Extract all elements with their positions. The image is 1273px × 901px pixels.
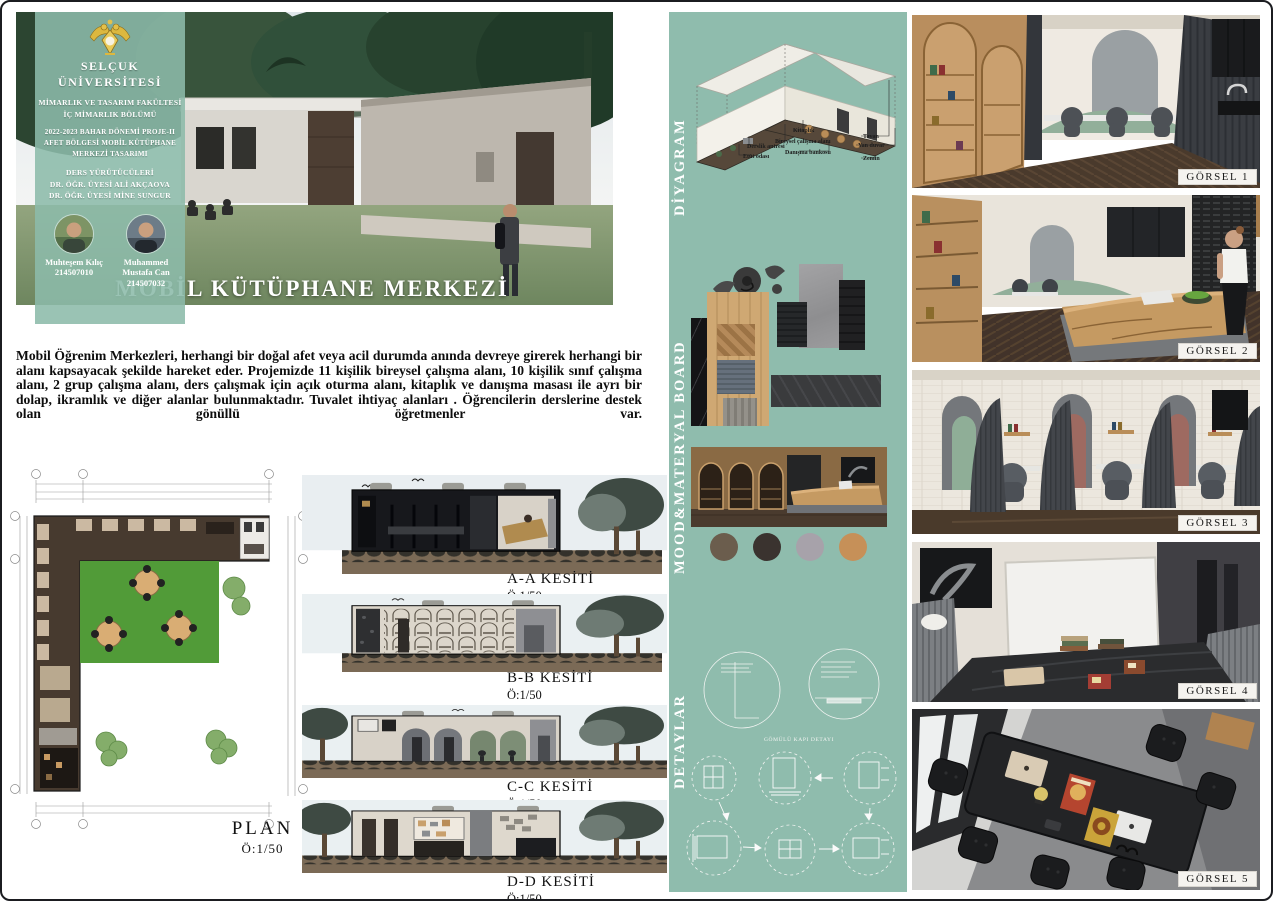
gorsel-2-art: [912, 195, 1260, 362]
group-table-1: [40, 666, 70, 690]
department-name: İÇ MİMARLIK BÖLÜMÜ: [35, 109, 185, 121]
courtyard: [80, 561, 219, 663]
gorsel-1-art: [912, 15, 1260, 188]
gorsel-4-art: [912, 542, 1260, 702]
section-cc-label: C-C KESİTİ: [507, 779, 657, 796]
section-bb-caption: B-B KESİTİ Ö:1/50: [507, 670, 657, 703]
section-bb-scale: Ö:1/50: [507, 688, 657, 703]
wall-art: [841, 457, 875, 483]
student-2-name: Muhammed Mustafa Can: [116, 257, 176, 278]
section-dd-art: [302, 800, 667, 873]
wooden-bookshelf: [912, 15, 1042, 188]
university-logo: [87, 18, 133, 58]
detail-circle-2: [809, 649, 879, 719]
detail-drawings: GÖMÜLÜ KAPI DETAYI: [683, 640, 901, 890]
section-cc-art: [302, 705, 667, 778]
section-bb-label: B-B KESİTİ: [507, 670, 657, 687]
project-name-line1: AFET BÖLGESİ MOBİL KÜTÜPHANE: [35, 138, 185, 149]
student-2-portrait: [127, 215, 165, 253]
color-palette: [669, 533, 907, 561]
laptop: [839, 481, 853, 490]
section-dd-caption: D-D KESİTİ Ö:1/50: [507, 874, 657, 901]
diagram-annotation: Kitaplık: [793, 128, 815, 134]
university-name: SELÇUK ÜNİVERSİTESİ: [35, 59, 185, 90]
section-dd-scale: Ö:1/50: [507, 892, 657, 901]
upper-cabinet: [1212, 19, 1260, 77]
material-sample-ribbed-panel: [717, 360, 755, 394]
section-aa-art: [302, 475, 667, 574]
section-dd-label: D-D KESİTİ: [507, 874, 657, 891]
project-term: 2022-2023 BAHAR DÖNEMİ PROJE-II: [35, 127, 185, 138]
gorsel-5-art: [912, 709, 1260, 890]
student-2-id: 214507032: [116, 278, 176, 289]
gorsel-5-label: GÖRSEL 5: [1178, 871, 1257, 887]
green-strip: DİYAGRAM MOOD&MATERYAL BOARD DETAYLAR: [669, 12, 907, 892]
desk-chairs: [1061, 107, 1173, 137]
diagram-annotation: Danışma bankosu: [785, 150, 832, 156]
section-aa-label: A-A KESİTİ: [507, 571, 657, 588]
diagram-annotation: Zemin: [863, 156, 880, 162]
student-2-photo: [126, 214, 166, 254]
palette-swatch-3: [796, 533, 824, 561]
project-description: Mobil Öğrenim Merkezleri, herhangi bir d…: [16, 349, 642, 422]
diagram-annotation: Yan duvar: [858, 143, 885, 149]
info-sidebar: SELÇUK ÜNİVERSİTESİ MİMARLIK VE TASARIM …: [35, 12, 185, 324]
render-gorsel-5: GÖRSEL 5: [912, 709, 1260, 890]
upper-cabinets: [1107, 207, 1185, 257]
detail-bubbles: [687, 752, 896, 875]
material-sample-chevron-floor: [771, 375, 881, 407]
palette-swatch-1: [710, 533, 738, 561]
material-sample-slate: [777, 302, 807, 347]
tablet: [1003, 667, 1044, 687]
material-sample-weathered-wood: [723, 398, 757, 426]
gorsel-3-art: [912, 370, 1260, 534]
gorsel-4-label: GÖRSEL 4: [1178, 683, 1257, 699]
wall-art: [920, 548, 992, 608]
section-cc-drawing: [302, 705, 667, 778]
student-1-photo: [54, 214, 94, 254]
floor-plan: PLAN Ö:1/50: [10, 466, 350, 866]
faculty-block: MİMARLIK VE TASARIM FAKÜLTESİ İÇ MİMARLI…: [35, 97, 185, 120]
material-sample-black-wood: [839, 280, 865, 350]
section-bb-art: [302, 594, 667, 672]
student-2: Muhammed Mustafa Can 214507032: [116, 214, 176, 289]
teacher-counter: [206, 522, 234, 534]
lecturers-block: DERS YÜRÜTÜCÜLERİ DR. ÖĞR. ÜYESİ ALİ AKÇ…: [35, 167, 185, 202]
bookshelf: [414, 818, 464, 857]
diagram-annotation: Tavan: [863, 134, 879, 140]
student-1-name: Muhteşem Kılıç: [44, 257, 104, 268]
detail-circle-1: [704, 652, 780, 728]
section-aa-drawing: [302, 475, 667, 574]
project-name-line2: MERKEZİ TASARIMI: [35, 149, 185, 160]
gorsel-2-label: GÖRSEL 2: [1178, 343, 1257, 359]
render-gorsel-4: GÖRSEL 4: [912, 542, 1260, 702]
faculty-name: MİMARLIK VE TASARIM FAKÜLTESİ: [35, 97, 185, 109]
palette-swatch-2: [753, 533, 781, 561]
palette-swatch-4: [839, 533, 867, 561]
material-sample-herringbone: [717, 324, 755, 356]
gorsel-3-label: GÖRSEL 3: [1178, 515, 1257, 531]
group-table-2: [40, 698, 70, 722]
diagram-annotation: Etüt odası: [743, 154, 770, 160]
lecturer-2: DR. ÖĞR. ÜYESİ MİNE SUNGUR: [35, 190, 185, 202]
corner-cabinet: [1212, 390, 1248, 430]
render-gorsel-1: GÖRSEL 1: [912, 15, 1260, 188]
section-bb-drawing: [302, 594, 667, 672]
student-1-id: 214507010: [44, 267, 104, 278]
moodboard: [691, 255, 893, 539]
plant-bowl: [1185, 291, 1209, 299]
section-dd-drawing: [302, 800, 667, 873]
roof-slab: [697, 44, 895, 95]
students-row: Muhteşem Kılıç 214507010 Muhammed Mustaf…: [35, 214, 185, 289]
gorsel-1-label: GÖRSEL 1: [1178, 169, 1257, 185]
student-1: Muhteşem Kılıç 214507010: [44, 214, 104, 289]
project-block: 2022-2023 BAHAR DÖNEMİ PROJE-II AFET BÖL…: [35, 127, 185, 160]
detail-caption: GÖMÜLÜ KAPI DETAYI: [764, 736, 834, 743]
student-1-portrait: [55, 215, 93, 253]
moodboard-interior-render: [691, 447, 887, 527]
render-gorsel-3: GÖRSEL 3: [912, 370, 1260, 534]
isometric-diagram: Kitaplık Bireysel çalışma alanı Danışma …: [689, 24, 901, 204]
presentation-board: MOBİL KÜTÜPHANE MERKEZİ SELÇUK ÜNİVERSİT…: [0, 0, 1273, 901]
floor-plan-drawing: [10, 466, 350, 866]
lecturer-1: DR. ÖĞR. ÜYESİ ALİ AKÇAOVA: [35, 179, 185, 191]
diagram-annotation: Derslik antresi: [747, 144, 785, 150]
arched-bookshelves: [699, 463, 783, 509]
render-gorsel-2: GÖRSEL 2: [912, 195, 1260, 362]
lecturers-heading: DERS YÜRÜTÜCÜLERİ: [35, 167, 185, 179]
eagle-emblem-icon: [87, 18, 133, 58]
entry-mat: [39, 728, 77, 745]
